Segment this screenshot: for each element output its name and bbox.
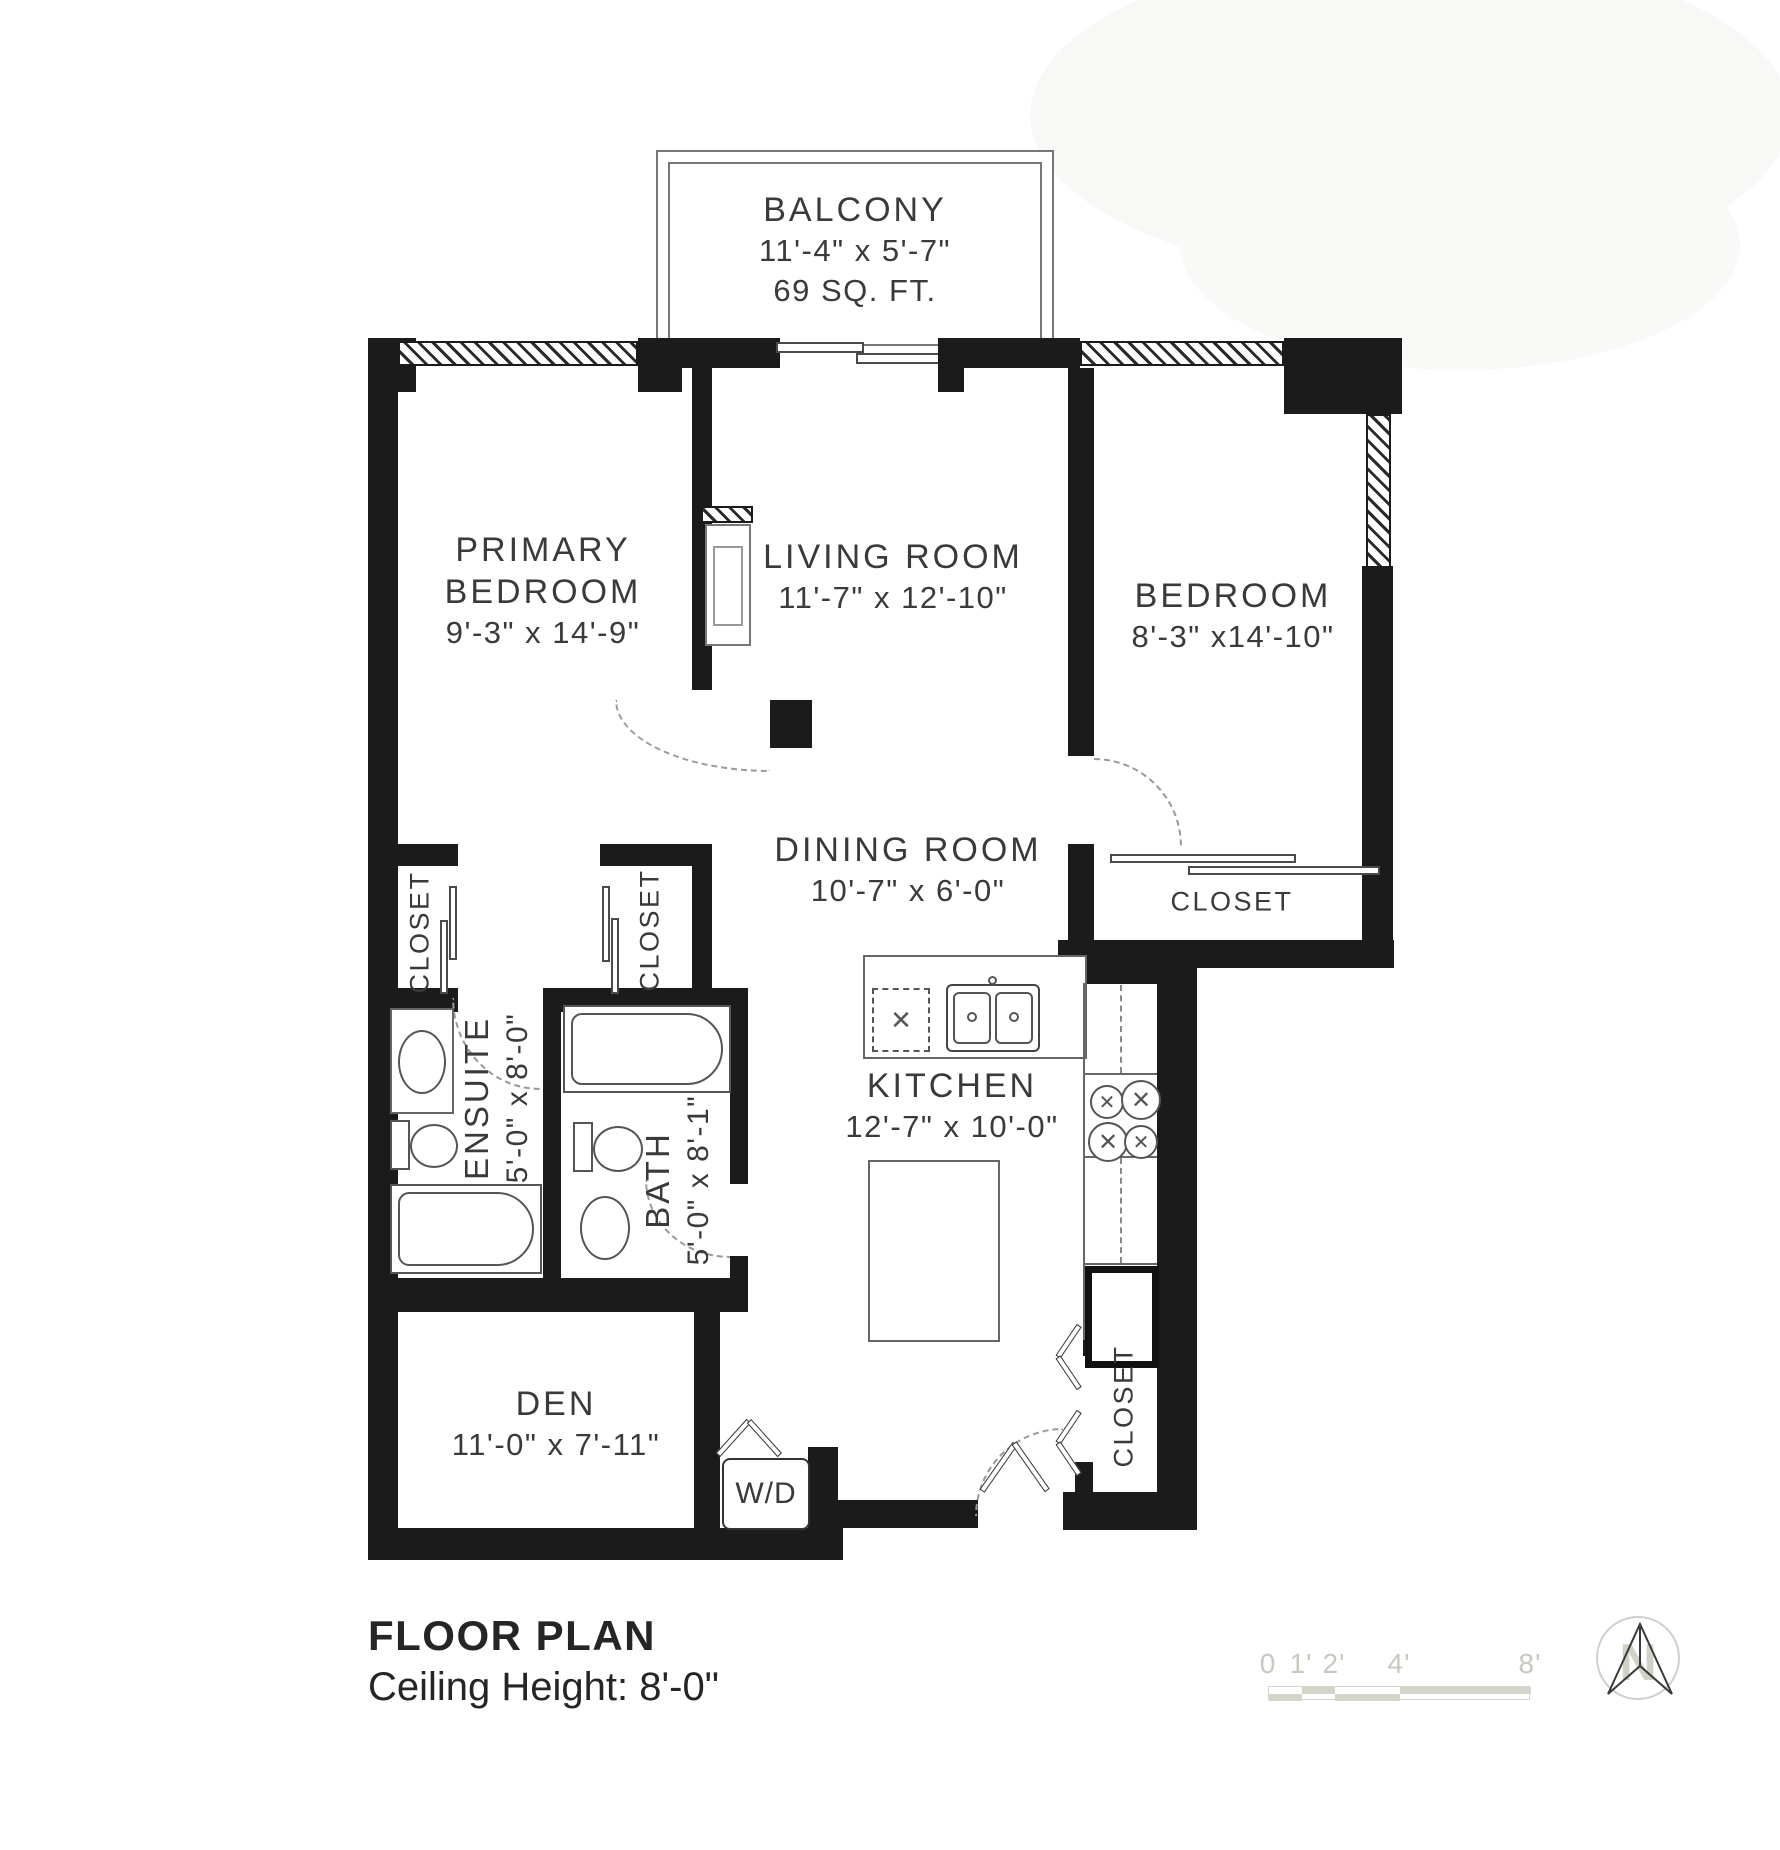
closet2-sliding-panel-1 xyxy=(602,886,610,962)
north-needle-icon xyxy=(1598,1618,1682,1702)
primary-bedroom-name-2: BEDROOM xyxy=(445,571,642,613)
wall-living-bedroom-upper xyxy=(1068,368,1094,756)
wall-top-a xyxy=(682,338,780,368)
ensuite-tub-inner xyxy=(398,1192,534,1266)
closet3-text: CLOSET xyxy=(1170,887,1293,918)
kitchen-counter-dashed-2 xyxy=(1120,1158,1122,1263)
kitchen-counter-dashed-1 xyxy=(1120,985,1122,1073)
den-label: DEN 11'-0" x 7'-11" xyxy=(452,1383,661,1465)
scale-bar xyxy=(1268,1686,1530,1700)
ensuite-toilet-bowl xyxy=(410,1124,458,1168)
floor-plan-canvas: BALCONY 11'-4" x 5'-7" 69 SQ. FT. xyxy=(0,0,1780,1850)
wall-left-exterior xyxy=(368,338,398,1560)
scale-seg-top-2 xyxy=(1400,1687,1531,1694)
bedroom-dims: 8'-3" x14'-10" xyxy=(1131,617,1334,657)
wall-top-pillar-1 xyxy=(638,338,682,392)
scale-label-1: 1' xyxy=(1290,1648,1313,1680)
wall-bottom-left xyxy=(368,1528,843,1560)
dining-room-label: DINING ROOM 10'-7" x 6'-0" xyxy=(774,829,1041,911)
stove-burner-2: ✕ xyxy=(1121,1080,1161,1120)
scale-label-0: 0 xyxy=(1260,1648,1277,1680)
kitchen-sink-drain-right xyxy=(1009,1012,1019,1022)
kitchen-sink-drain-left xyxy=(967,1012,977,1022)
primary-bedroom-name-1: PRIMARY xyxy=(455,529,630,571)
closet1-sliding-panel-2 xyxy=(449,886,457,960)
wall-top-pillar-2 xyxy=(938,338,964,392)
wall-top-corner-right xyxy=(1284,338,1402,414)
bath-name: BATH xyxy=(637,1131,679,1229)
bedroom-closet-sliding-panel-1 xyxy=(1110,854,1296,863)
closet1-text: CLOSET xyxy=(405,870,436,993)
primary-bedroom-dims: 9'-3" x 14'-9" xyxy=(446,613,640,653)
wd-door-leaf-right xyxy=(747,1419,782,1457)
bedroom-label: BEDROOM 8'-3" x14'-10" xyxy=(1131,575,1334,657)
fireplace-hatch xyxy=(701,506,753,523)
scale-seg-bottom-2 xyxy=(1335,1694,1400,1701)
kitchen-dims: 12'-7" x 10'-0" xyxy=(845,1107,1058,1147)
bedroom-closet-sliding-panel-2 xyxy=(1188,866,1380,875)
closet1-label: CLOSET xyxy=(405,870,436,993)
floor-plan-title: FLOOR PLAN xyxy=(368,1612,656,1660)
living-room-name: LIVING ROOM xyxy=(763,536,1023,578)
ensuite-dims: 5'-0" x 8'-0" xyxy=(498,1013,538,1184)
balcony-area: 69 SQ. FT. xyxy=(773,271,936,311)
window-right-bedroom xyxy=(1366,414,1391,568)
scale-label-4: 4' xyxy=(1388,1648,1411,1680)
ceiling-height-note: Ceiling Height: 8'-0" xyxy=(368,1665,719,1710)
wall-closet2-right xyxy=(692,844,712,990)
dining-room-dims: 10'-7" x 6'-0" xyxy=(811,871,1005,911)
balcony-dims: 11'-4" x 5'-7" xyxy=(759,231,951,271)
den-dims: 11'-0" x 7'-11" xyxy=(452,1425,661,1465)
closet4-text: CLOSET xyxy=(1109,1344,1140,1467)
kitchen-name: KITCHEN xyxy=(867,1065,1037,1107)
kitchen-column-divider-3 xyxy=(1083,1263,1157,1265)
dining-room-name: DINING ROOM xyxy=(774,829,1041,871)
ensuite-name: ENSUITE xyxy=(456,1016,498,1180)
kitchen-faucet xyxy=(988,976,997,985)
scale-seg-top-1 xyxy=(1302,1687,1335,1694)
closet2-text: CLOSET xyxy=(635,868,666,991)
living-room-label: LIVING ROOM 11'-7" x 12'-10" xyxy=(763,536,1023,618)
balcony-sliding-door-panel-2 xyxy=(856,353,942,364)
bath-dims: 5'-0" x 8'-1" xyxy=(679,1095,719,1266)
kitchen-label: KITCHEN 12'-7" x 10'-0" xyxy=(845,1065,1058,1147)
dishwasher: ✕ xyxy=(872,988,930,1052)
wall-wd-right xyxy=(808,1447,838,1529)
bedroom-door-arc xyxy=(1094,758,1182,846)
wall-top-b xyxy=(964,338,1080,368)
bath-toilet-tank xyxy=(573,1122,593,1172)
kitchen-column-divider-1 xyxy=(1083,1073,1157,1075)
wall-kitchen-top-block xyxy=(1083,950,1159,984)
ensuite-sink xyxy=(398,1030,446,1094)
wall-closet1-top xyxy=(368,844,458,866)
stove-burner-3: ✕ xyxy=(1088,1122,1128,1162)
balcony-sliding-door-panel-1 xyxy=(776,342,864,353)
wall-dining-jamb xyxy=(770,700,812,748)
balcony-label: BALCONY 11'-4" x 5'-7" 69 SQ. FT. xyxy=(759,189,951,311)
closet1-sliding-panel-1 xyxy=(440,920,448,994)
bath-toilet-bowl xyxy=(593,1126,643,1172)
burner-cross-icon: ✕ xyxy=(1099,1090,1116,1115)
closet3-label: CLOSET xyxy=(1170,887,1293,918)
closet4-label: CLOSET xyxy=(1109,1344,1140,1467)
stove-burner-1: ✕ xyxy=(1090,1085,1124,1119)
entry-closet-bifold-1a xyxy=(1056,1324,1082,1359)
scale-seg-bottom-1 xyxy=(1269,1694,1302,1701)
bedroom-name: BEDROOM xyxy=(1135,575,1332,617)
primary-bedroom-door-arc xyxy=(615,700,770,772)
scale-label-8: 8' xyxy=(1519,1648,1542,1680)
window-top-right xyxy=(1080,341,1284,366)
bath-sink xyxy=(580,1196,630,1260)
ensuite-label: ENSUITE 5'-0" x 8'-0" xyxy=(456,1013,538,1184)
entry-door-arc xyxy=(975,1428,1063,1516)
den-name: DEN xyxy=(516,1383,597,1425)
closet2-label: CLOSET xyxy=(635,868,666,991)
washer-dryer-label: W/D xyxy=(735,1477,796,1511)
wall-kitchen-right xyxy=(1157,940,1197,1530)
stove-burner-4: ✕ xyxy=(1124,1125,1158,1159)
balcony-name: BALCONY xyxy=(763,189,947,231)
living-room-dims: 11'-7" x 12'-10" xyxy=(778,578,1008,618)
dishwasher-cross-icon: ✕ xyxy=(890,1005,912,1036)
closet2-sliding-panel-2 xyxy=(611,918,619,994)
kitchen-island xyxy=(868,1160,1000,1342)
wall-bath-right-upper xyxy=(730,1012,748,1184)
wall-ensuite-bath-divider xyxy=(543,988,561,1312)
wall-bottom-entry xyxy=(1063,1492,1175,1530)
ensuite-toilet-tank xyxy=(390,1120,410,1170)
burner-cross-icon: ✕ xyxy=(1131,1086,1151,1115)
primary-bedroom-label: PRIMARY BEDROOM 9'-3" x 14'-9" xyxy=(445,529,642,653)
entry-closet-bifold-1b xyxy=(1056,1355,1082,1390)
window-top-left xyxy=(398,341,638,366)
burner-cross-icon: ✕ xyxy=(1133,1130,1150,1155)
north-compass: N xyxy=(1596,1616,1680,1700)
bath-label: BATH 5'-0" x 8'-1" xyxy=(637,1095,719,1266)
wall-bathroom-bottom xyxy=(368,1278,748,1312)
wall-right-exterior xyxy=(1362,566,1393,946)
scale-label-2: 2' xyxy=(1323,1648,1346,1680)
bath-tub-inner xyxy=(571,1013,723,1085)
washer-dryer-box: W/D xyxy=(722,1458,810,1530)
fireplace-niche-inner xyxy=(713,546,743,626)
burner-cross-icon: ✕ xyxy=(1098,1128,1118,1157)
watermark-blob-2 xyxy=(1180,120,1740,370)
wd-door-leaf-left xyxy=(716,1419,751,1457)
wall-bottom-mid xyxy=(838,1500,978,1528)
wall-den-right xyxy=(694,1283,720,1533)
